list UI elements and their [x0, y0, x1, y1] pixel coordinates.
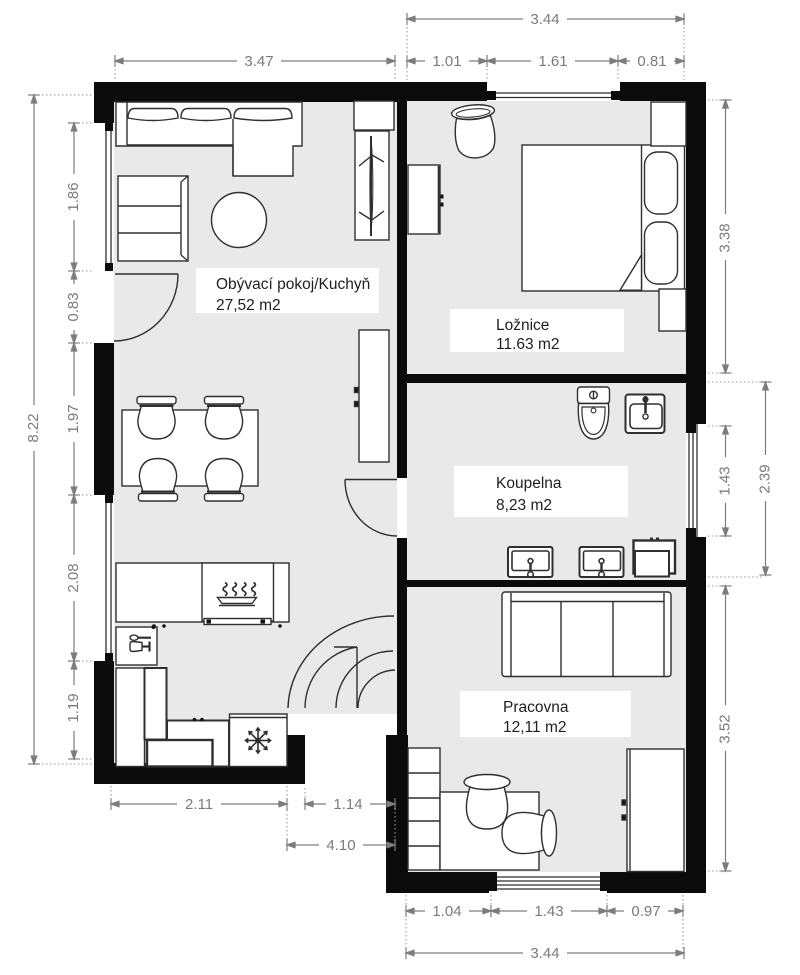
- svg-text:1.14: 1.14: [333, 796, 362, 813]
- svg-text:Obývací pokoj/Kuchyň: Obývací pokoj/Kuchyň: [216, 276, 370, 293]
- svg-text:3.47: 3.47: [244, 53, 273, 70]
- svg-text:1.43: 1.43: [534, 903, 563, 920]
- svg-text:27,52 m2: 27,52 m2: [216, 297, 281, 314]
- svg-text:1.19: 1.19: [65, 693, 82, 722]
- svg-text:Ložnice: Ložnice: [496, 317, 549, 334]
- svg-text:1.61: 1.61: [538, 53, 567, 70]
- svg-text:1.01: 1.01: [432, 53, 461, 70]
- svg-text:0.81: 0.81: [637, 53, 666, 70]
- svg-text:11.63 m2: 11.63 m2: [496, 336, 559, 353]
- svg-text:3.52: 3.52: [717, 714, 734, 743]
- svg-text:8.22: 8.22: [25, 413, 42, 442]
- svg-text:1.04: 1.04: [432, 903, 461, 920]
- svg-text:0.97: 0.97: [631, 903, 660, 920]
- svg-text:3.44: 3.44: [530, 11, 559, 28]
- svg-text:Koupelna: Koupelna: [496, 475, 562, 492]
- svg-text:1.97: 1.97: [65, 404, 82, 433]
- svg-text:2.39: 2.39: [757, 464, 774, 493]
- svg-text:0.83: 0.83: [65, 292, 82, 321]
- svg-text:4.10: 4.10: [326, 837, 355, 854]
- svg-text:Pracovna: Pracovna: [503, 699, 569, 716]
- svg-text:3.38: 3.38: [717, 223, 734, 252]
- svg-text:1.43: 1.43: [717, 466, 734, 495]
- svg-text:8,23 m2: 8,23 m2: [496, 497, 552, 514]
- svg-text:3.44: 3.44: [530, 945, 559, 962]
- svg-text:2.11: 2.11: [185, 796, 213, 813]
- svg-text:1.86: 1.86: [65, 182, 82, 211]
- svg-text:2.08: 2.08: [65, 563, 82, 592]
- svg-text:12,11 m2: 12,11 m2: [503, 719, 566, 736]
